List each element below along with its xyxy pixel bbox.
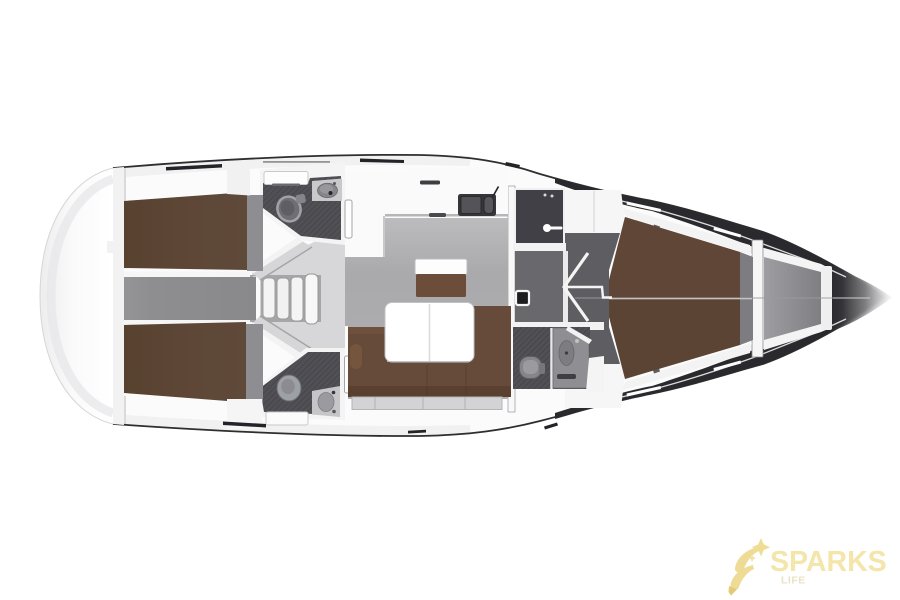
- svg-text:LIFE: LIFE: [781, 575, 806, 587]
- svg-text:SPARKS: SPARKS: [770, 546, 887, 578]
